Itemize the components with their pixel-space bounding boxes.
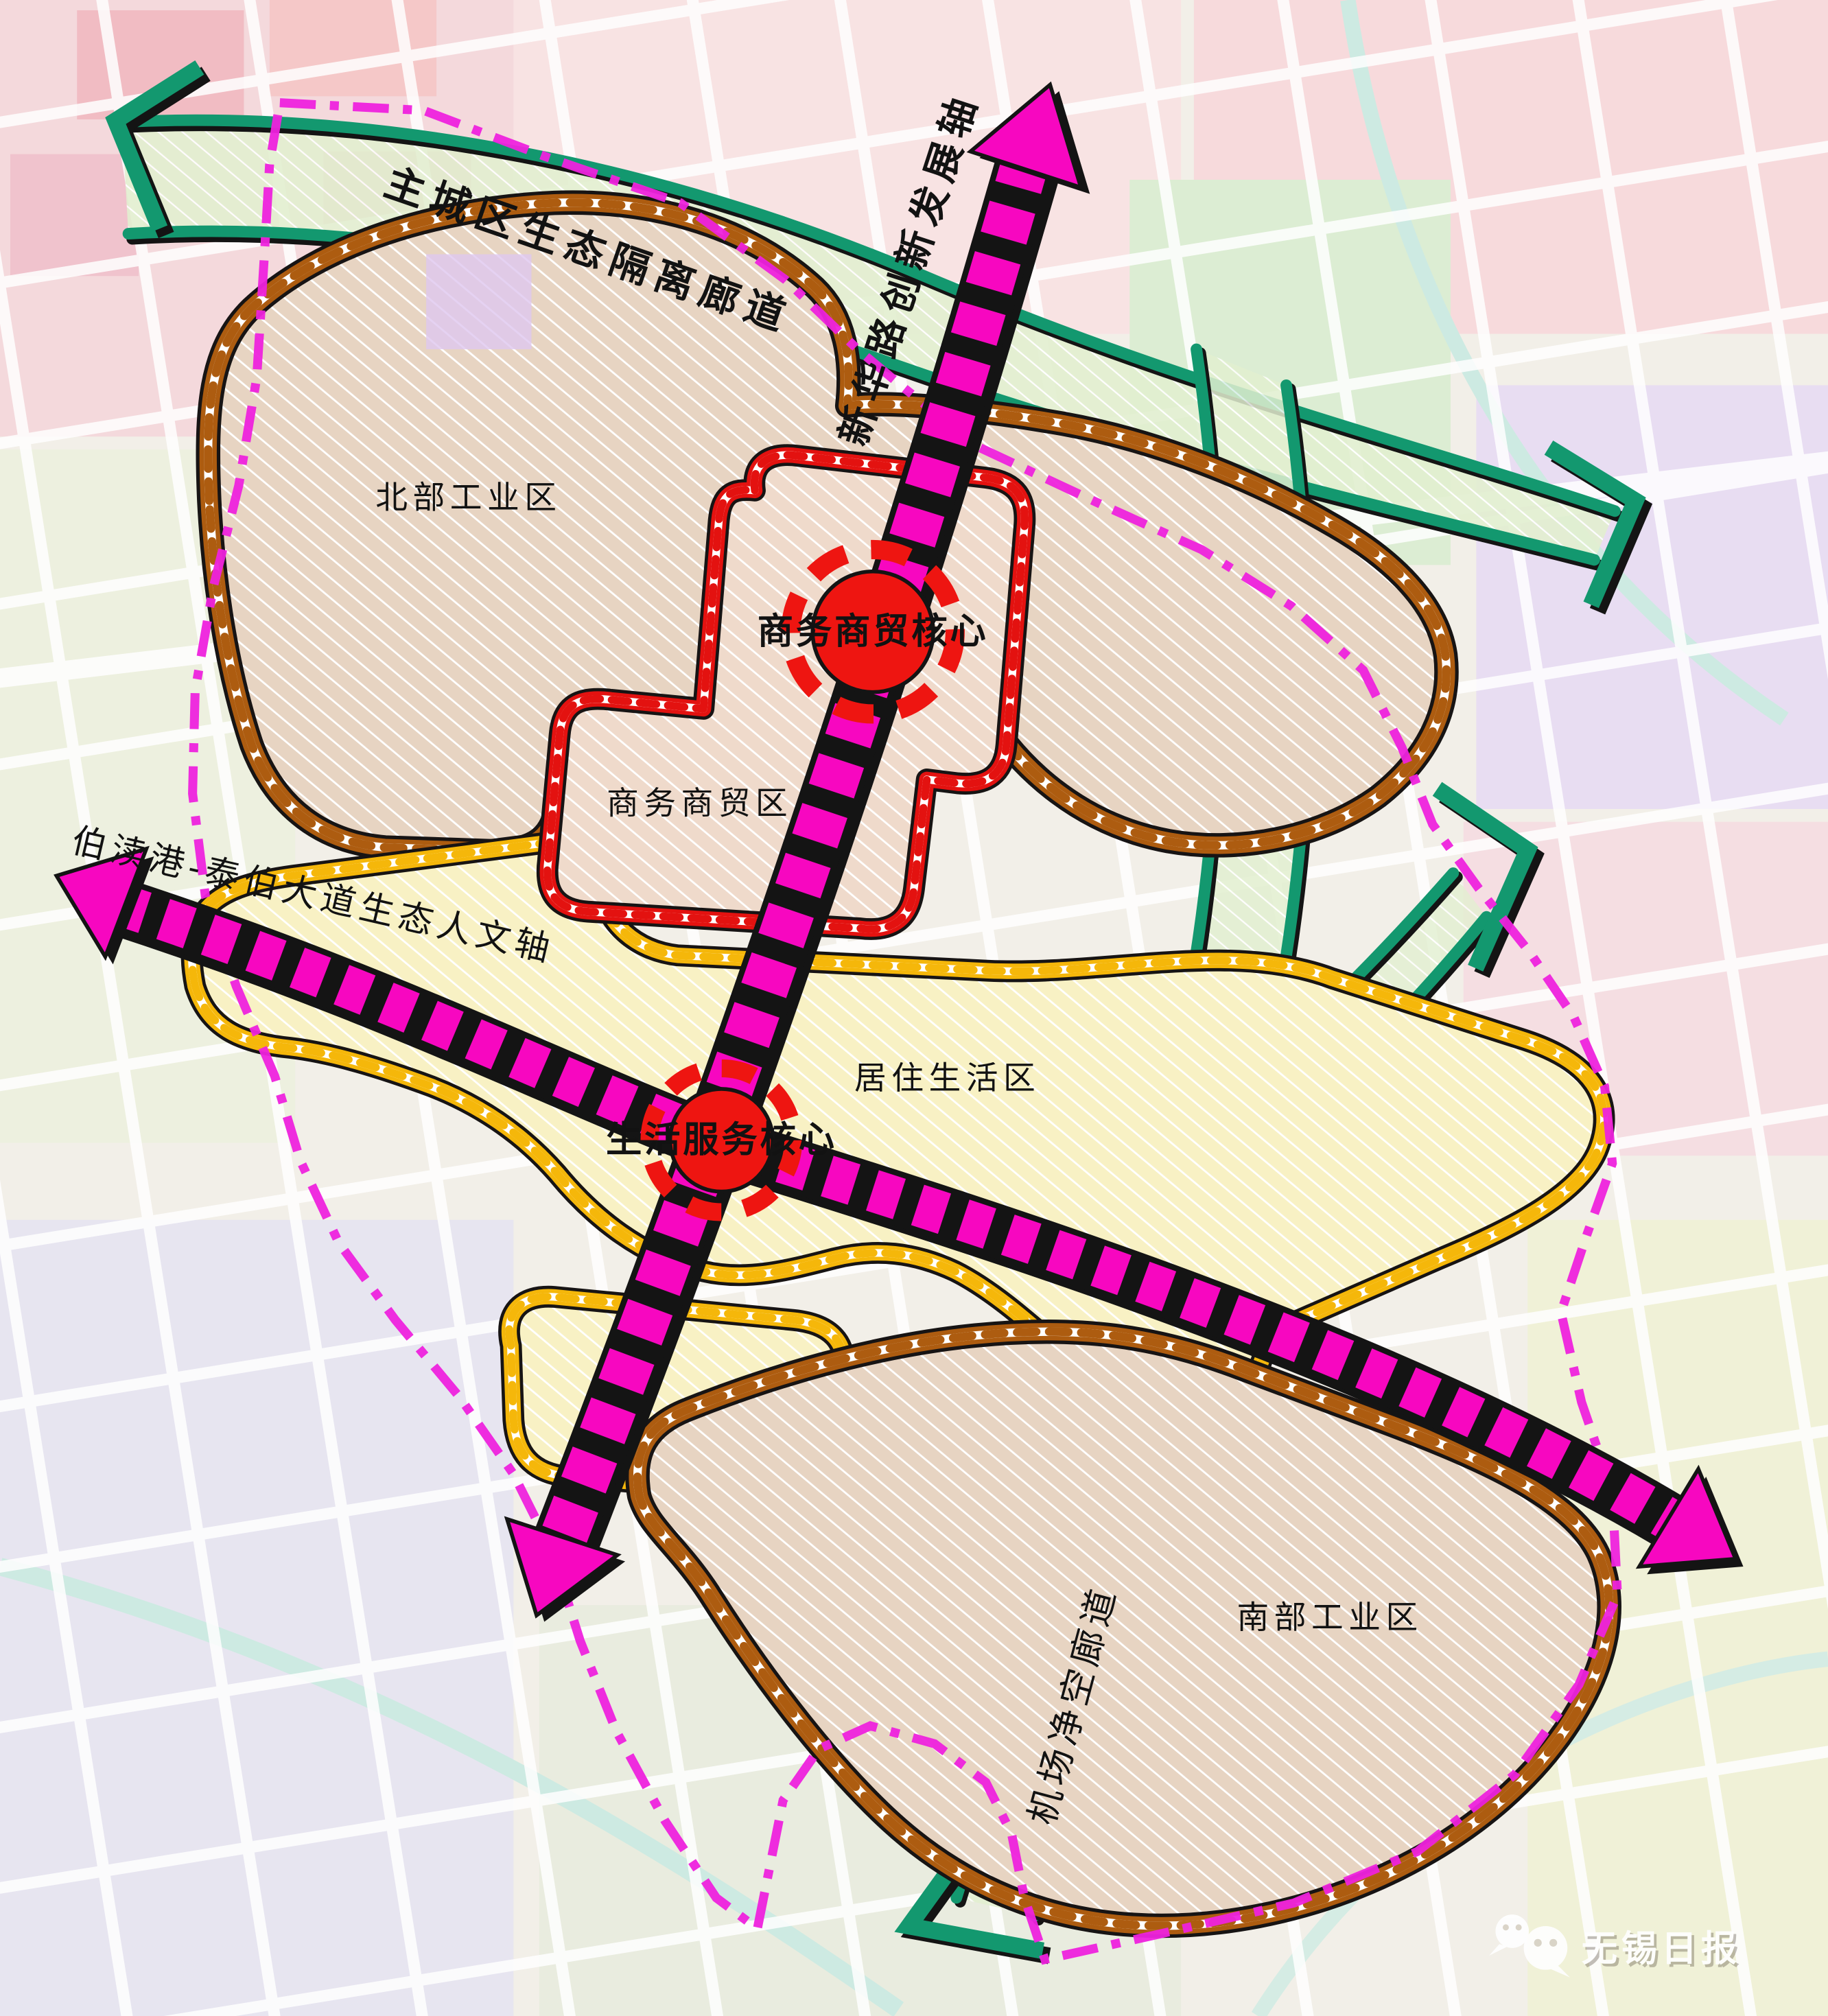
planning-map: 主城区生态隔离廊道 新华路创新发展轴 伯渎港-泰伯大道生态人文轴 机场净空廊道 … [0,0,1828,2016]
label-core-business: 商务商贸核心 [758,612,989,652]
label-zone-residential: 居住生活区 [854,1060,1040,1096]
label-core-life: 生活服务核心 [606,1121,837,1160]
label-zone-business: 商务商贸区 [607,785,793,821]
label-zone-north: 北部工业区 [375,480,561,515]
land-parcel-purple [426,255,531,349]
map-canvas: 主城区生态隔离廊道 新华路创新发展轴 伯渎港-泰伯大道生态人文轴 机场净空廊道 … [0,0,1828,2016]
watermark-text: 无锡日报 [1582,1930,1741,1969]
label-zone-south: 南部工业区 [1237,1599,1423,1635]
